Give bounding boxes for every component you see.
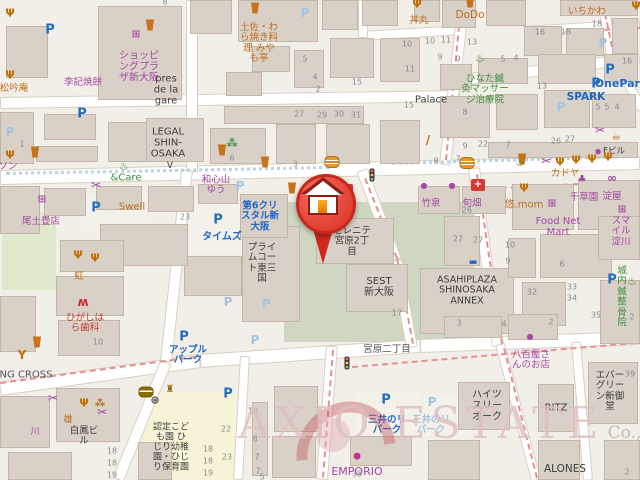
- house-number: 18: [203, 458, 213, 467]
- house-number: 27: [453, 236, 463, 245]
- building: [538, 54, 596, 84]
- map-label: いちかわ: [568, 7, 606, 17]
- house-number: 3: [292, 161, 297, 170]
- house-number: 8: [433, 158, 438, 167]
- house-number: 9: [437, 54, 442, 63]
- house-number: 23: [180, 214, 190, 223]
- building: [604, 440, 640, 480]
- house-number: 1: [19, 141, 24, 150]
- house-number: 18: [592, 21, 602, 30]
- supermarket-icon: ⊞: [618, 205, 626, 215]
- people-icon: ⁂: [95, 399, 105, 409]
- building: [444, 316, 502, 338]
- house-number: 16: [535, 29, 545, 38]
- house-number: 10: [505, 242, 515, 251]
- house-number: 2: [624, 469, 629, 478]
- map-label: DoDo: [455, 10, 484, 22]
- house-number: 27: [565, 136, 575, 145]
- map-label: ハイツ スリー オーク: [472, 390, 502, 423]
- house-number: 16: [622, 58, 632, 67]
- traffic-signal-icon: [345, 357, 350, 370]
- parking-icon: P: [557, 101, 566, 113]
- house-door-icon: [318, 200, 327, 213]
- parking-icon: P: [179, 331, 189, 344]
- parking-icon: P: [428, 396, 437, 408]
- building: [0, 296, 36, 352]
- map-label: アップル パーク: [169, 346, 207, 367]
- house-roof-icon: [305, 181, 341, 195]
- parking-icon: P: [591, 78, 601, 91]
- restaurant-icon: Ψ: [412, 0, 421, 10]
- house-number: 23: [222, 454, 232, 463]
- parking-icon: P: [77, 108, 87, 121]
- house-number: 22: [478, 141, 488, 150]
- house-number: 2: [315, 86, 320, 95]
- map-canvas[interactable]: AXIO ESTATECo., Ltd ショッピ ングプラ ザ新大阪李記焼餅pr…: [0, 0, 640, 480]
- house-number: 19: [203, 470, 213, 479]
- parking-icon: P: [381, 394, 391, 407]
- building: [0, 396, 50, 448]
- restaurant-icon: Ψ: [73, 250, 82, 261]
- map-label: 丼丸: [409, 16, 428, 26]
- house-number: 3: [456, 320, 461, 329]
- map-label: OnePark: [595, 78, 640, 90]
- supermarket-icon: ⊞: [132, 30, 140, 40]
- map-label: RITZ: [545, 403, 568, 414]
- house-number: 2: [548, 319, 553, 328]
- hairdresser-icon: ✂: [595, 124, 605, 136]
- parking-icon: P: [262, 298, 271, 310]
- dentist-icon: ʍ: [77, 296, 88, 308]
- restaurant-icon: Ψ: [555, 157, 564, 168]
- parking-icon: P: [224, 296, 233, 308]
- house-number: 10: [248, 408, 258, 417]
- house-number: 31: [351, 112, 361, 121]
- pipe-icon: /: [426, 134, 430, 146]
- house-number: 26: [551, 138, 561, 147]
- map-label: 竹泉: [421, 199, 440, 209]
- building: [108, 122, 148, 162]
- greengrocer-icon: ●: [449, 182, 456, 190]
- house-number: 8: [162, 0, 167, 7]
- map-label: 淀屋: [602, 192, 621, 202]
- map-label: 認定こど も園 ひ じり幼稚 園・ひじ り保育園: [153, 423, 189, 472]
- restaurant-icon: Ψ: [519, 183, 528, 194]
- map-label: ひなた鍼 灸マッサー ジ治療院: [461, 74, 509, 105]
- cafe-icon: ☕: [611, 131, 621, 142]
- house-number: 30: [334, 111, 344, 120]
- house-number: 22: [221, 426, 231, 435]
- house-number: 18: [107, 460, 117, 469]
- people-icon: ⁂: [226, 138, 237, 149]
- building: [322, 0, 358, 30]
- house-number: 34: [567, 295, 577, 304]
- map-label: pres de la gare: [154, 74, 179, 107]
- building: [294, 50, 324, 88]
- parking-icon: P: [45, 24, 55, 37]
- house-number: 27: [294, 111, 304, 120]
- map-label: 土佐・わ ら焼き料 理 みや も亭: [240, 23, 278, 65]
- poi-dot-icon: ●: [595, 149, 601, 156]
- house-number: 9: [455, 56, 460, 65]
- supermarket-icon: ⊞: [548, 199, 556, 209]
- map-label: 白鳳ビ ル: [70, 427, 99, 448]
- map-label: 尾土畳店: [22, 217, 60, 227]
- parking-icon: P: [223, 388, 233, 401]
- house-number: 5: [302, 56, 307, 65]
- house-number: 18: [203, 446, 213, 455]
- traffic-signal-icon: [370, 169, 375, 182]
- massage-icon: ♨: [475, 53, 485, 64]
- map-label: 虹: [74, 272, 84, 282]
- map-label: ALONES: [544, 464, 586, 476]
- house-number: 15: [352, 79, 362, 88]
- parking-icon: P: [605, 64, 615, 77]
- house-number: 13: [467, 39, 477, 48]
- map-label: スマイル 淀川: [612, 216, 631, 247]
- house-number: 4: [614, 104, 619, 113]
- map-label: 川: [30, 428, 39, 438]
- restaurant-icon: Ψ: [5, 8, 14, 19]
- house-number: 32: [527, 289, 537, 298]
- map-label: カドヤ: [551, 169, 580, 179]
- house-number: 11: [405, 66, 415, 75]
- hairdresser-icon: ✂: [541, 155, 551, 167]
- house-number: 4: [513, 55, 518, 64]
- map-label: 八百屋さ んのお店: [512, 351, 550, 372]
- building: [486, 0, 526, 26]
- house-number: 27: [473, 237, 483, 246]
- house-number: 39: [625, 371, 635, 380]
- map-label: 旬畑: [462, 199, 481, 209]
- restaurant-icon: Ψ: [571, 155, 580, 166]
- hairdresser-icon: ✂: [91, 179, 101, 191]
- optician-icon: ∞: [607, 172, 617, 184]
- map-label: エバー グリー ン新御 堂: [596, 371, 625, 413]
- restaurant-icon: Ψ: [5, 150, 14, 161]
- map-label: Palace: [415, 95, 447, 106]
- house-number: 29: [317, 112, 327, 121]
- restaurant-icon: Ψ: [5, 70, 14, 81]
- parking-icon: P: [607, 274, 617, 287]
- house-number: 4: [312, 74, 317, 83]
- road: [233, 356, 250, 480]
- restaurant-icon: Ψ: [631, 1, 640, 12]
- house-number: 10: [93, 339, 103, 348]
- house-number: 5: [595, 104, 600, 113]
- building: [380, 120, 420, 164]
- house-number: 18: [561, 29, 571, 38]
- map-label: タイムズ: [202, 232, 242, 243]
- house-number: 33: [567, 284, 577, 293]
- building: [276, 124, 316, 164]
- house-number: 6: [559, 261, 564, 270]
- hotel-icon: ▬: [469, 259, 478, 268]
- house-number: 11: [441, 37, 451, 46]
- monument-icon: ♜: [166, 385, 175, 395]
- map-label: 雄: [63, 416, 72, 426]
- house-number: 15: [404, 102, 414, 111]
- house-number: 6: [229, 155, 234, 164]
- playground-icon: ⊛: [150, 395, 159, 406]
- building: [44, 188, 86, 216]
- house-number: 18: [107, 448, 117, 457]
- fastfood-icon: [460, 157, 475, 169]
- parking-icon: P: [236, 180, 245, 192]
- restaurant-icon: Ψ: [79, 398, 88, 409]
- supermarket-icon: ⊞: [38, 195, 46, 205]
- clinic-icon: +: [471, 179, 485, 191]
- fastfood-icon: [325, 156, 340, 168]
- parking-icon: P: [6, 126, 15, 138]
- map-label: 千草園: [570, 193, 599, 203]
- house-number: 17: [392, 310, 402, 319]
- house-number: 5: [604, 104, 609, 113]
- restaurant-icon: Ψ: [603, 152, 612, 163]
- building: [190, 0, 232, 34]
- house-number: 10: [425, 38, 435, 47]
- parking-icon: P: [251, 334, 260, 346]
- building: [8, 452, 72, 480]
- restaurant-icon: Ψ: [90, 253, 99, 264]
- map-label: 悠.mom: [505, 200, 544, 211]
- house-number: 9: [505, 258, 510, 267]
- map-label: 和心山 ゆう: [202, 176, 231, 197]
- building: [330, 38, 374, 78]
- map-label: Food Net Mart: [536, 216, 581, 238]
- building: [44, 114, 96, 140]
- map-label: SEST 新大阪: [364, 276, 394, 298]
- map-label: 第6クリ スタル新 大阪: [241, 201, 279, 232]
- drink-icon: [288, 183, 297, 194]
- house-number: 9: [462, 143, 467, 152]
- house-number: 19: [107, 472, 117, 480]
- map-label: 宮原二丁目: [363, 345, 411, 355]
- hairdresser-icon: ✂: [48, 392, 58, 404]
- bar-icon: Y: [18, 349, 27, 361]
- greengrocer-icon: ●: [527, 333, 534, 341]
- florist-icon: ♣: [578, 175, 587, 185]
- map-label: Swell: [119, 202, 145, 213]
- house-number: 5: [500, 56, 505, 65]
- map-label: V: [167, 162, 173, 172]
- map-label: 李記焼餅: [64, 78, 102, 88]
- massage-icon: ♨: [627, 276, 637, 287]
- map-label: SPARK: [567, 92, 606, 104]
- map-label: ソン: [0, 162, 18, 172]
- parking-icon: P: [599, 37, 608, 49]
- house-number: 4: [501, 321, 506, 330]
- building: [380, 38, 420, 82]
- parking-icon: P: [91, 202, 101, 215]
- house-number: 8: [462, 109, 467, 118]
- house-number: 8: [252, 436, 257, 445]
- building: [36, 146, 98, 162]
- building: [612, 18, 638, 54]
- map-label: ひがしは ら歯科: [66, 314, 104, 335]
- map-label: NG CROSS: [0, 370, 52, 381]
- map-label: &Care: [111, 173, 142, 184]
- building: [184, 256, 242, 296]
- house-number: 7: [254, 454, 259, 463]
- massage-icon: ♨: [119, 161, 129, 172]
- map-label: 松吟庵: [0, 84, 28, 94]
- building: [148, 186, 194, 212]
- map-label: プライ ムコー ト東三 国: [248, 243, 277, 285]
- house-number: 13: [537, 83, 547, 92]
- massage-icon: ♨: [515, 157, 525, 168]
- parking-icon: P: [301, 7, 310, 19]
- map-label: LEGAL SHIN- OSAKA: [151, 127, 185, 160]
- parking-icon: P: [213, 214, 223, 227]
- building: [226, 72, 262, 96]
- house-number: 7: [505, 142, 510, 151]
- house-number: 10: [402, 41, 412, 50]
- building: [362, 0, 398, 26]
- house-number: 5: [259, 474, 264, 480]
- building: [56, 276, 124, 316]
- greengrocer-icon: ●: [421, 182, 428, 190]
- map-label: ASAHIPLAZA SHINOSAKA ANNEX: [437, 275, 497, 306]
- building: [428, 440, 480, 480]
- map-label: 三井のリ パーク: [412, 416, 450, 437]
- house-number: 35: [591, 312, 601, 321]
